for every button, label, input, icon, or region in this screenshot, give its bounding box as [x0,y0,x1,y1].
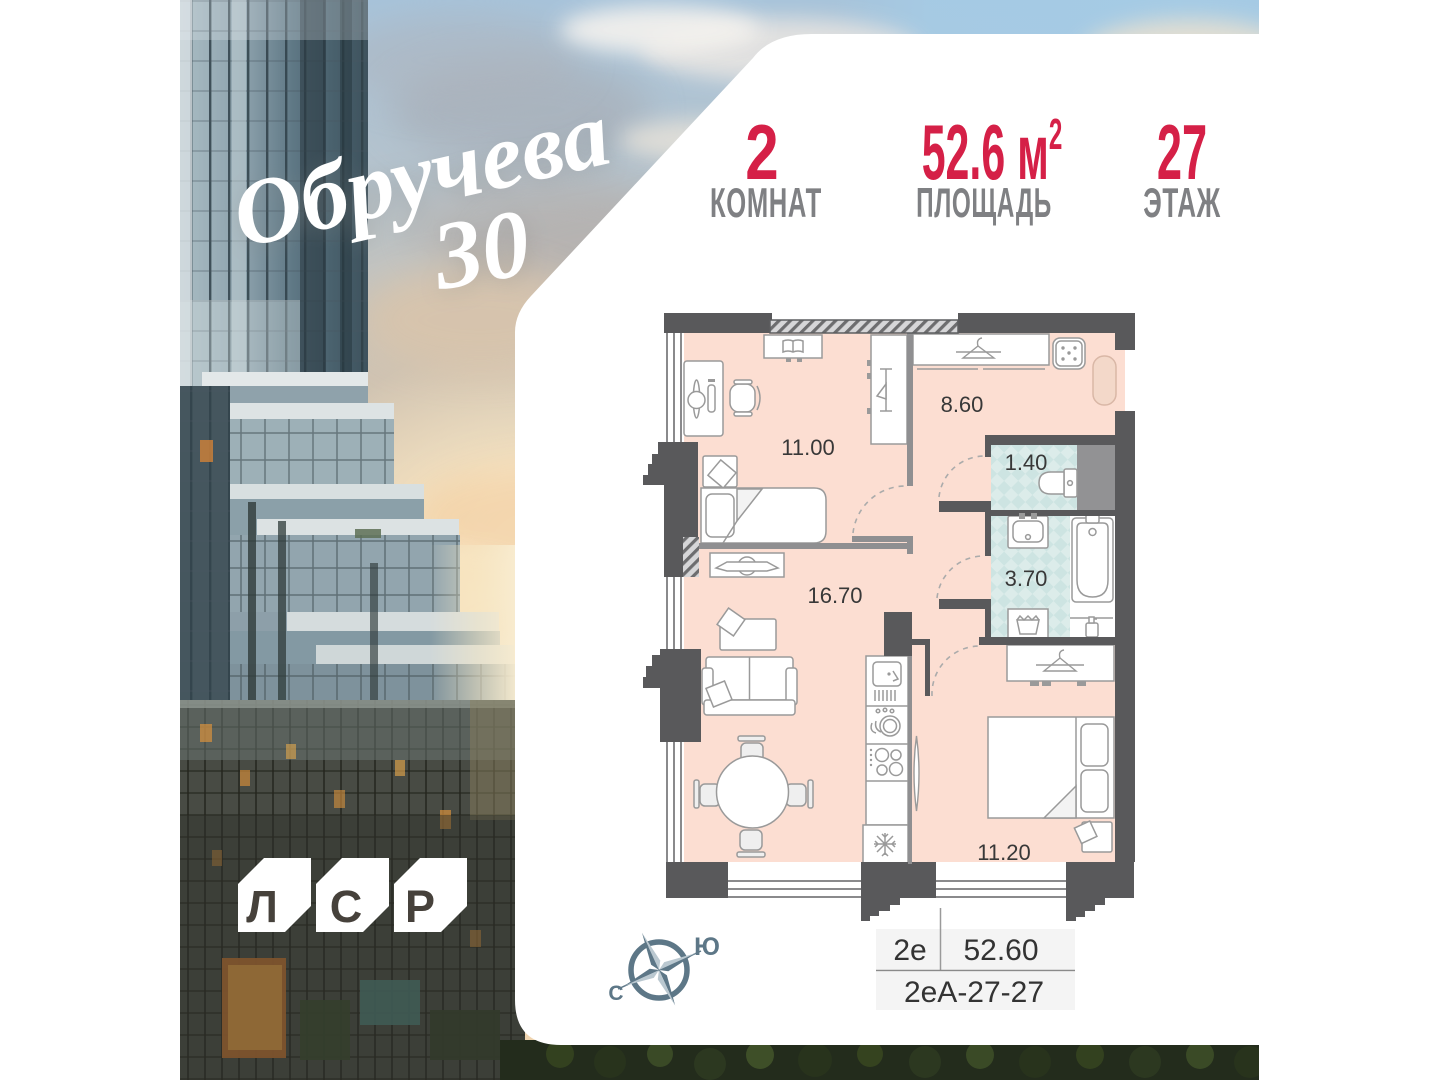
svg-text:16.70: 16.70 [807,583,862,608]
svg-text:ПЛОЩАДЬ: ПЛОЩАДЬ [916,180,1052,226]
svg-text:11.00: 11.00 [781,435,834,460]
svg-text:Л: Л [246,881,278,932]
svg-text:С: С [608,982,623,1005]
svg-text:2е: 2е [893,934,926,967]
svg-text:С: С [330,881,363,932]
svg-text:Ю: Ю [694,933,720,961]
svg-text:ЭТАЖ: ЭТАЖ [1143,180,1221,227]
svg-text:Р: Р [405,881,435,932]
svg-text:1.40: 1.40 [1005,450,1048,475]
svg-text:52.60: 52.60 [963,934,1038,967]
svg-text:8.60: 8.60 [941,392,984,417]
svg-text:30: 30 [424,188,538,310]
svg-text:КОМНАТ: КОМНАТ [710,181,822,227]
svg-text:2еА-27-27: 2еА-27-27 [904,976,1044,1009]
svg-text:11.20: 11.20 [977,840,1030,865]
svg-text:3.70: 3.70 [1005,566,1048,591]
